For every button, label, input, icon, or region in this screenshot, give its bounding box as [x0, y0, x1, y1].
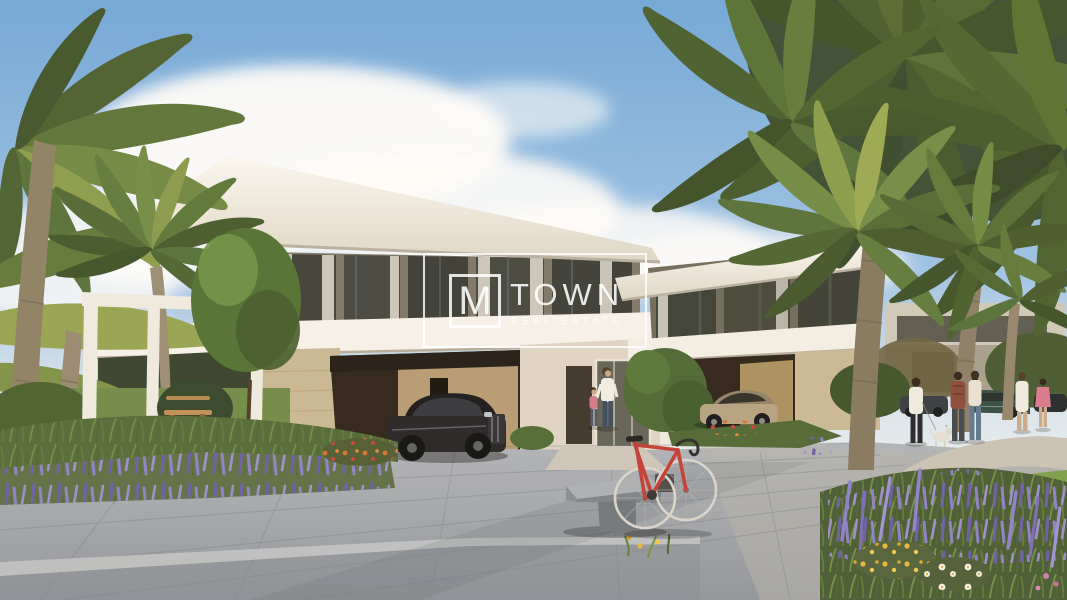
- watermark-monogram: M: [458, 281, 491, 321]
- watermark-monogram-box: M: [449, 274, 501, 328]
- watermark-tagline: REAL ESTATE: [511, 316, 623, 327]
- render-photo: M TOWN REAL ESTATE: [0, 0, 1067, 600]
- watermark-brand: TOWN: [510, 277, 624, 313]
- watermark-logo: M TOWN REAL ESTATE: [423, 253, 647, 348]
